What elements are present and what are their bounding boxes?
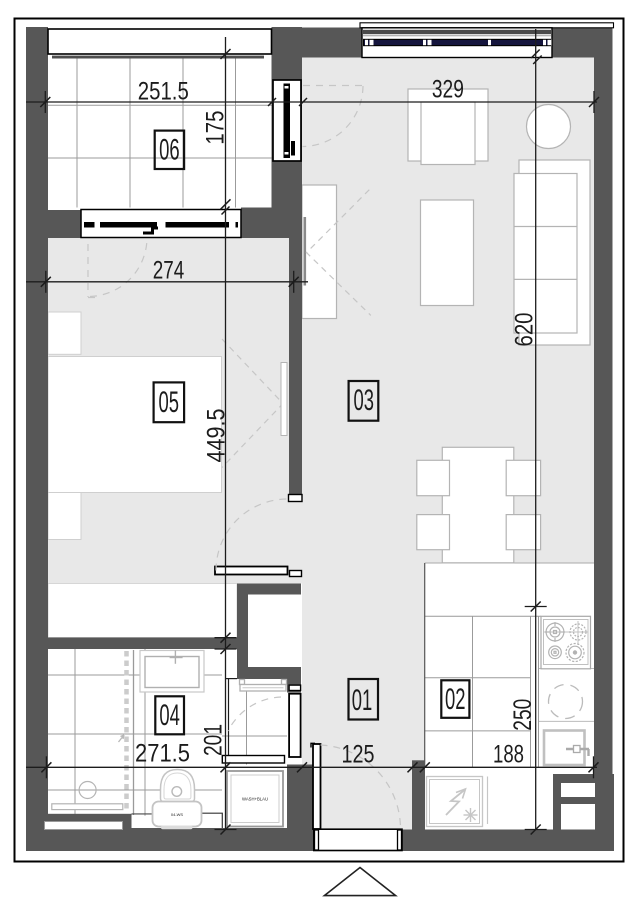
svg-text:06: 06 [159,134,180,167]
svg-text:274: 274 [153,257,185,285]
svg-text:01: 01 [352,684,373,717]
svg-text:251.5: 251.5 [138,78,189,106]
svg-text:WASH+BLAU: WASH+BLAU [242,797,268,802]
svg-text:449.5: 449.5 [203,409,231,463]
svg-text:620: 620 [511,313,539,347]
svg-text:271.5: 271.5 [135,740,190,768]
svg-text:175: 175 [202,111,230,145]
svg-text:250: 250 [509,699,537,731]
svg-text:04-WS: 04-WS [171,812,184,817]
svg-text:04: 04 [159,699,180,732]
svg-text:05: 05 [159,386,180,419]
svg-text:125: 125 [342,741,375,769]
svg-text:329: 329 [432,76,464,104]
svg-text:201: 201 [200,724,228,756]
svg-text:188: 188 [493,741,524,769]
svg-text:03: 03 [353,384,374,417]
svg-text:02: 02 [445,683,466,716]
